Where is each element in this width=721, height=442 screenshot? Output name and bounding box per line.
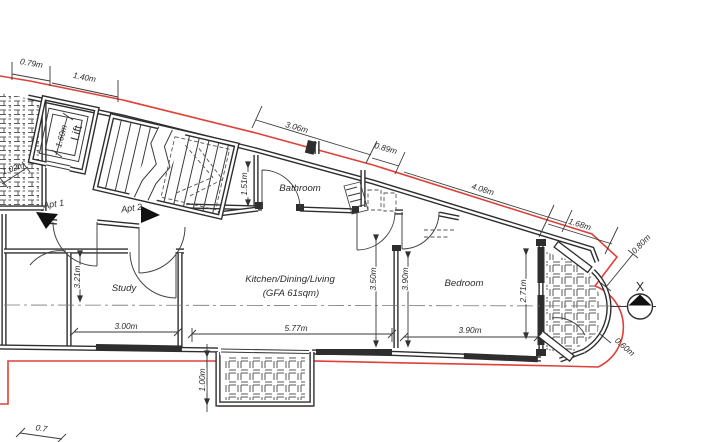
dimension-label-0-79m: 0.79m (19, 56, 44, 70)
entry-label-apt1: Apt 1 (41, 198, 64, 211)
dimension-label-5-77m: 5.77m (284, 323, 307, 333)
section-marker-label: X (636, 280, 645, 294)
dimension-label-3-90m-width: 3.90m (458, 325, 481, 335)
room-label-kitchen-line1: Kitchen/Dining/Living (245, 274, 335, 285)
room-label-bathroom: Bathroom (279, 183, 321, 194)
room-label-bedroom: Bedroom (445, 278, 484, 289)
apt2-arrow (141, 206, 160, 223)
room-label-study: Study (112, 283, 138, 294)
floor-plan-svg: X 0.79m 1.40m (0, 0, 721, 442)
stair-break (128, 123, 186, 207)
section-marker: X (610, 280, 656, 319)
dimension-label-1-60m: 1.60m (53, 124, 69, 149)
dimension-label-0-60m: 0.60m (613, 335, 637, 358)
dimension-label-0-89m: 0.89m (373, 140, 398, 156)
service-shaft-hatch (0, 93, 44, 207)
dimension-label-1-40m: 1.40m (72, 70, 97, 84)
floor-plan-canvas: X 0.79m 1.40m (0, 0, 721, 442)
dimension-label-2-71m: 2.71m (518, 279, 528, 303)
dimension-label-3-90m-height: 3.90m (400, 267, 410, 290)
dimension-label-4-08m: 4.08m (470, 181, 495, 197)
dimension-label-1-00m: 1.00m (197, 368, 207, 391)
section-cut-line (4, 305, 626, 306)
dimension-label-3-50m: 3.50m (368, 267, 378, 290)
dimension-label-0-80m: 0.80m (629, 232, 652, 256)
room-label-kitchen-line2: (GFA 61sqm) (263, 288, 320, 299)
staircase (95, 115, 237, 218)
dimension-label-3-21m: 3.21m (72, 265, 82, 288)
dimension-label-partial: 0.7 (35, 422, 48, 434)
entry-label-apt2: Apt 2 (119, 202, 142, 215)
bottom-balcony-tiles (225, 356, 305, 400)
dimension-label-3-00m: 3.00m (114, 321, 137, 331)
dimension-label-1-51m: 1.51m (239, 172, 249, 195)
